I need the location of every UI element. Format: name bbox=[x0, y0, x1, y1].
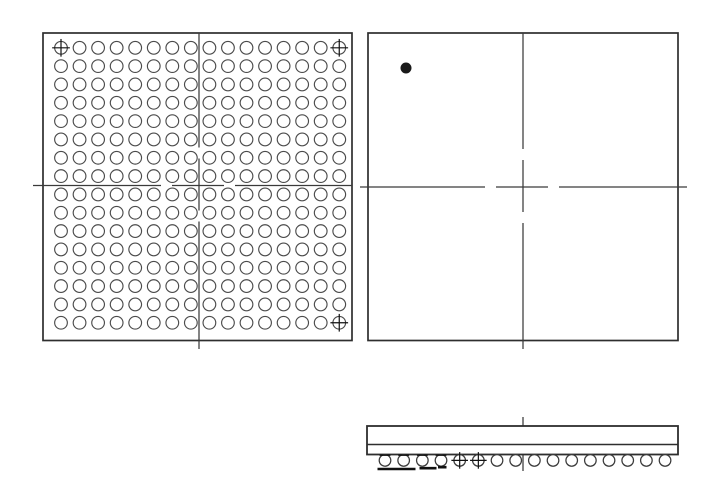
ball-pad bbox=[92, 188, 105, 201]
ball-pad bbox=[203, 243, 216, 256]
ball-pad bbox=[222, 78, 235, 91]
ball-pad bbox=[203, 188, 216, 201]
ball-pad bbox=[314, 41, 327, 54]
ball-pad bbox=[73, 206, 86, 219]
ball-pad bbox=[55, 316, 68, 329]
ball-pad bbox=[296, 206, 309, 219]
ball-pad bbox=[110, 206, 123, 219]
ball-pad bbox=[296, 60, 309, 73]
ball-pad bbox=[240, 78, 253, 91]
ball-pad bbox=[129, 206, 142, 219]
ball-pad bbox=[314, 115, 327, 128]
ball-pad bbox=[92, 115, 105, 128]
ball-pad bbox=[185, 41, 198, 54]
ball-pad bbox=[259, 261, 272, 274]
ball-pad bbox=[110, 316, 123, 329]
ball-pad bbox=[110, 115, 123, 128]
ball-pad bbox=[185, 60, 198, 73]
ball-pad bbox=[129, 41, 142, 54]
ball-pad bbox=[92, 261, 105, 274]
ball-pad bbox=[55, 280, 68, 293]
ball-pad bbox=[240, 280, 253, 293]
ball-pad bbox=[314, 170, 327, 183]
ball-pad bbox=[129, 60, 142, 73]
ball-pad bbox=[92, 280, 105, 293]
ball-pad bbox=[314, 96, 327, 109]
solder-ball bbox=[435, 455, 447, 467]
ball-pad bbox=[314, 60, 327, 73]
ball-pad bbox=[277, 133, 290, 146]
ball-pad bbox=[73, 151, 86, 164]
ball-pad bbox=[222, 225, 235, 238]
ball-pad bbox=[240, 96, 253, 109]
ball-pad bbox=[277, 41, 290, 54]
ball-pad bbox=[147, 41, 160, 54]
ball-pad bbox=[259, 298, 272, 311]
ball-pad bbox=[73, 316, 86, 329]
ball-pad bbox=[333, 261, 346, 274]
ball-pad bbox=[166, 133, 179, 146]
ball-pad bbox=[147, 261, 160, 274]
ball-pad bbox=[333, 206, 346, 219]
ball-pad bbox=[240, 188, 253, 201]
ball-pad bbox=[92, 225, 105, 238]
ball-pad bbox=[55, 115, 68, 128]
ball-pad bbox=[185, 206, 198, 219]
ball-pad bbox=[240, 170, 253, 183]
ball-pad bbox=[333, 133, 346, 146]
solder-ball bbox=[398, 455, 410, 467]
ball-pad bbox=[314, 298, 327, 311]
ball-pad bbox=[110, 151, 123, 164]
ball-pad bbox=[129, 151, 142, 164]
ball-pad bbox=[314, 78, 327, 91]
ball-pad bbox=[222, 243, 235, 256]
ball-pad bbox=[147, 60, 160, 73]
ball-pad bbox=[147, 133, 160, 146]
ball-pad bbox=[203, 316, 216, 329]
ball-pad bbox=[314, 133, 327, 146]
ball-pad bbox=[92, 78, 105, 91]
ball-pad bbox=[92, 41, 105, 54]
ball-pad bbox=[296, 316, 309, 329]
ball-pad bbox=[129, 316, 142, 329]
ball-pad bbox=[147, 316, 160, 329]
ball-pad bbox=[166, 41, 179, 54]
ball-pad bbox=[185, 280, 198, 293]
ball-pad bbox=[296, 41, 309, 54]
ball-pad bbox=[259, 225, 272, 238]
ball-pad bbox=[147, 243, 160, 256]
ball-pad bbox=[92, 298, 105, 311]
ball-pad bbox=[203, 41, 216, 54]
ball-pad bbox=[203, 170, 216, 183]
ball-pad bbox=[110, 225, 123, 238]
ball-pad bbox=[73, 298, 86, 311]
ball-pad bbox=[55, 261, 68, 274]
solder-ball bbox=[659, 455, 671, 467]
solder-ball bbox=[417, 455, 429, 467]
ball-pad bbox=[166, 243, 179, 256]
ball-pad bbox=[203, 225, 216, 238]
ball-pad bbox=[73, 78, 86, 91]
solder-ball bbox=[622, 455, 634, 467]
ball-pad bbox=[147, 115, 160, 128]
ball-pad bbox=[73, 261, 86, 274]
ball-pad bbox=[203, 280, 216, 293]
ball-pad bbox=[147, 151, 160, 164]
ball-pad bbox=[277, 170, 290, 183]
ball-pad bbox=[55, 243, 68, 256]
solder-ball bbox=[379, 455, 391, 467]
ball-pad bbox=[203, 60, 216, 73]
ball-pad bbox=[314, 261, 327, 274]
ball-pad bbox=[147, 298, 160, 311]
ball-pad bbox=[259, 115, 272, 128]
ball-pad bbox=[92, 60, 105, 73]
ball-pad bbox=[166, 60, 179, 73]
ball-pad bbox=[129, 188, 142, 201]
ball-pad bbox=[222, 261, 235, 274]
ball-pad bbox=[259, 151, 272, 164]
ball-pad bbox=[110, 78, 123, 91]
ball-pad bbox=[129, 280, 142, 293]
ball-pad bbox=[277, 60, 290, 73]
ball-pad bbox=[129, 115, 142, 128]
ball-pad bbox=[240, 225, 253, 238]
ball-pad bbox=[222, 133, 235, 146]
ball-pad bbox=[277, 316, 290, 329]
bottom-view-ball-map bbox=[33, 33, 352, 349]
ball-pad bbox=[259, 41, 272, 54]
ball-pad bbox=[222, 115, 235, 128]
ball-pad bbox=[277, 206, 290, 219]
ball-pad bbox=[314, 206, 327, 219]
ball-pad bbox=[333, 60, 346, 73]
ball-pad bbox=[296, 280, 309, 293]
ball-pad bbox=[185, 316, 198, 329]
ball-pad bbox=[333, 151, 346, 164]
ball-pad bbox=[314, 225, 327, 238]
ball-pad bbox=[240, 60, 253, 73]
ball-pad bbox=[259, 206, 272, 219]
ball-pad bbox=[166, 151, 179, 164]
solder-ball bbox=[510, 455, 522, 467]
ball-pad bbox=[185, 96, 198, 109]
ball-pad bbox=[277, 188, 290, 201]
ball-pad bbox=[277, 78, 290, 91]
ball-pad bbox=[92, 151, 105, 164]
ball-pad bbox=[73, 96, 86, 109]
ball-pad bbox=[110, 133, 123, 146]
ball-pad bbox=[185, 261, 198, 274]
ball-pad bbox=[240, 133, 253, 146]
ball-pad bbox=[147, 280, 160, 293]
ball-pad bbox=[129, 78, 142, 91]
ball-pad bbox=[314, 151, 327, 164]
ball-pad bbox=[222, 170, 235, 183]
ball-pad bbox=[240, 243, 253, 256]
ball-pad bbox=[55, 133, 68, 146]
ball-pad bbox=[203, 298, 216, 311]
ball-pad bbox=[296, 151, 309, 164]
ball-pad bbox=[166, 206, 179, 219]
ball-pad bbox=[203, 151, 216, 164]
ball-pad bbox=[129, 96, 142, 109]
ball-pad bbox=[147, 188, 160, 201]
ball-pad bbox=[222, 60, 235, 73]
ball-pad bbox=[55, 188, 68, 201]
ball-pad bbox=[203, 96, 216, 109]
ball-pad bbox=[277, 243, 290, 256]
ball-pad bbox=[185, 115, 198, 128]
ball-pad bbox=[73, 243, 86, 256]
ball-pad bbox=[73, 60, 86, 73]
ball-pad bbox=[129, 261, 142, 274]
ball-pad bbox=[333, 298, 346, 311]
ball-pad bbox=[110, 261, 123, 274]
ball-pad bbox=[129, 170, 142, 183]
ball-pad bbox=[110, 280, 123, 293]
ball-pad bbox=[203, 206, 216, 219]
ball-pad bbox=[203, 78, 216, 91]
ball-pad bbox=[185, 243, 198, 256]
ball-pad bbox=[110, 188, 123, 201]
ball-pad bbox=[277, 261, 290, 274]
ball-pad bbox=[259, 316, 272, 329]
ball-pad bbox=[240, 298, 253, 311]
ball-pad bbox=[147, 96, 160, 109]
ball-pad bbox=[129, 298, 142, 311]
ball-pad bbox=[277, 115, 290, 128]
ball-pad bbox=[203, 133, 216, 146]
ball-pad bbox=[73, 133, 86, 146]
ball-pad bbox=[259, 170, 272, 183]
solder-ball bbox=[641, 455, 653, 467]
ball-pad bbox=[222, 298, 235, 311]
ball-pad bbox=[277, 151, 290, 164]
ball-pad bbox=[222, 188, 235, 201]
ball-pad bbox=[55, 96, 68, 109]
ball-pad bbox=[240, 261, 253, 274]
ball-pad bbox=[166, 280, 179, 293]
ball-pad bbox=[92, 170, 105, 183]
ball-pad bbox=[55, 170, 68, 183]
package-outline-drawing bbox=[0, 0, 708, 487]
solder-ball bbox=[585, 455, 597, 467]
ball-pad bbox=[166, 261, 179, 274]
ball-pad bbox=[185, 151, 198, 164]
solder-ball bbox=[529, 455, 541, 467]
ball-pad bbox=[147, 206, 160, 219]
ball-pad bbox=[222, 316, 235, 329]
top-view bbox=[360, 33, 687, 349]
ball-pad bbox=[92, 316, 105, 329]
solder-ball bbox=[566, 455, 578, 467]
ball-pad bbox=[222, 96, 235, 109]
ball-pad bbox=[333, 96, 346, 109]
ball-pad bbox=[185, 78, 198, 91]
ball-pad bbox=[259, 280, 272, 293]
ball-pad bbox=[296, 225, 309, 238]
ball-pad bbox=[73, 225, 86, 238]
ball-pad bbox=[92, 96, 105, 109]
ball-pad bbox=[333, 78, 346, 91]
ball-pad bbox=[185, 188, 198, 201]
ball-pad bbox=[166, 115, 179, 128]
drawing-svg bbox=[0, 0, 708, 487]
ball-pad bbox=[240, 206, 253, 219]
ball-pad bbox=[296, 133, 309, 146]
ball-pad bbox=[333, 225, 346, 238]
ball-pad bbox=[296, 115, 309, 128]
ball-pad bbox=[203, 261, 216, 274]
ball-pad bbox=[110, 60, 123, 73]
ball-pad bbox=[240, 41, 253, 54]
solder-ball bbox=[547, 455, 559, 467]
ball-pad bbox=[296, 243, 309, 256]
ball-pad bbox=[277, 298, 290, 311]
ball-pad bbox=[314, 243, 327, 256]
ball-pad bbox=[92, 133, 105, 146]
ball-pad bbox=[185, 133, 198, 146]
ball-pad bbox=[296, 96, 309, 109]
ball-pad bbox=[147, 170, 160, 183]
ball-pad bbox=[333, 115, 346, 128]
ball-pad bbox=[73, 115, 86, 128]
ball-pad bbox=[55, 60, 68, 73]
ball-pad bbox=[259, 188, 272, 201]
side-view bbox=[367, 417, 678, 471]
ball-pad bbox=[240, 316, 253, 329]
ball-pad bbox=[296, 170, 309, 183]
ball-pad bbox=[296, 261, 309, 274]
ball-pad bbox=[203, 115, 216, 128]
ball-pad bbox=[277, 280, 290, 293]
ball-pad bbox=[240, 115, 253, 128]
ball-pad bbox=[147, 78, 160, 91]
ball-pad bbox=[73, 170, 86, 183]
ball-pad bbox=[166, 225, 179, 238]
ball-pad bbox=[147, 225, 160, 238]
ball-pad bbox=[55, 298, 68, 311]
ball-pad bbox=[333, 188, 346, 201]
ball-pad bbox=[259, 243, 272, 256]
ball-pad bbox=[129, 133, 142, 146]
ball-pad bbox=[129, 243, 142, 256]
ball-pad bbox=[333, 280, 346, 293]
ball-pad bbox=[55, 151, 68, 164]
ball-pad bbox=[277, 225, 290, 238]
ball-pad bbox=[166, 170, 179, 183]
ball-pad bbox=[185, 225, 198, 238]
ball-pad bbox=[222, 151, 235, 164]
ball-pad bbox=[55, 225, 68, 238]
ball-pad bbox=[110, 96, 123, 109]
ball-pad bbox=[277, 96, 290, 109]
ball-pad bbox=[129, 225, 142, 238]
ball-pad bbox=[185, 298, 198, 311]
ball-pad bbox=[166, 298, 179, 311]
ball-pad bbox=[222, 206, 235, 219]
ball-pad bbox=[259, 78, 272, 91]
ball-pad bbox=[222, 41, 235, 54]
ball-pad bbox=[166, 316, 179, 329]
ball-pad bbox=[333, 170, 346, 183]
ball-pad bbox=[185, 170, 198, 183]
ball-pad bbox=[314, 188, 327, 201]
ball-pad bbox=[166, 78, 179, 91]
ball-pad bbox=[166, 188, 179, 201]
ball-pad bbox=[259, 60, 272, 73]
package-body bbox=[367, 426, 678, 455]
ball-pad bbox=[73, 41, 86, 54]
pin1-indicator-dot bbox=[401, 63, 411, 73]
ball-pad bbox=[92, 206, 105, 219]
ball-pad bbox=[166, 96, 179, 109]
solder-ball bbox=[603, 455, 615, 467]
ball-pad bbox=[110, 170, 123, 183]
ball-pad bbox=[296, 298, 309, 311]
ball-pad bbox=[259, 133, 272, 146]
ball-pad bbox=[92, 243, 105, 256]
ball-pad bbox=[314, 280, 327, 293]
ball-pad bbox=[222, 280, 235, 293]
ball-pad bbox=[110, 298, 123, 311]
ball-pad bbox=[240, 151, 253, 164]
ball-pad bbox=[55, 78, 68, 91]
ball-pad bbox=[314, 316, 327, 329]
ball-pad bbox=[259, 96, 272, 109]
ball-pad bbox=[55, 206, 68, 219]
ball-pad bbox=[296, 188, 309, 201]
ball-pad bbox=[110, 41, 123, 54]
ball-pad bbox=[73, 188, 86, 201]
ball-pad bbox=[110, 243, 123, 256]
ball-pad bbox=[73, 280, 86, 293]
ball-pad bbox=[296, 78, 309, 91]
solder-ball bbox=[491, 455, 503, 467]
ball-pad bbox=[333, 243, 346, 256]
